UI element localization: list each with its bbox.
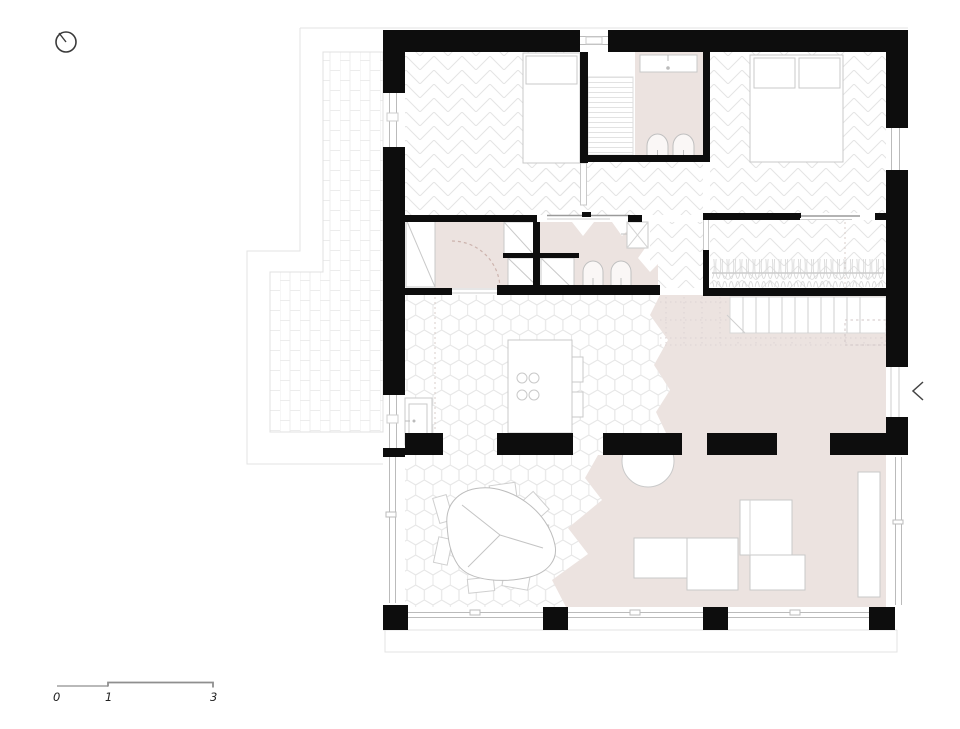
closet-hanger-rail [712,259,884,287]
pillar [703,607,728,630]
hall-floor [540,162,703,215]
window-right [892,128,900,170]
sideboard [858,472,880,597]
sliding-door-handle [582,212,591,217]
thresholds [452,289,497,293]
bed-single [523,53,580,163]
scale-label-0: 0 [53,690,60,704]
floor-plan-canvas: 0 1 3 [0,0,960,729]
terrace-west [270,52,383,432]
scale-bar: 0 1 3 [53,683,217,705]
kitchen-island [508,340,583,433]
pillar [869,607,895,630]
floor-plan-page: 0 1 3 [0,0,960,729]
stool [572,357,583,382]
window-left-1 [387,93,398,147]
entry-door-right [891,367,899,417]
north-arrow [56,32,76,52]
scale-label-1: 1 [105,690,112,704]
shower-tray [588,77,633,155]
sliding-door-handle [793,213,801,218]
window-left-2 [387,395,398,448]
pillar [543,607,568,630]
door-leaf [581,163,587,205]
scale-label-3: 3 [210,690,217,704]
pillar [383,605,408,630]
window-top [580,37,608,45]
stool [572,392,583,417]
entrance-chevron-icon [913,382,923,400]
bed-double [750,55,843,162]
